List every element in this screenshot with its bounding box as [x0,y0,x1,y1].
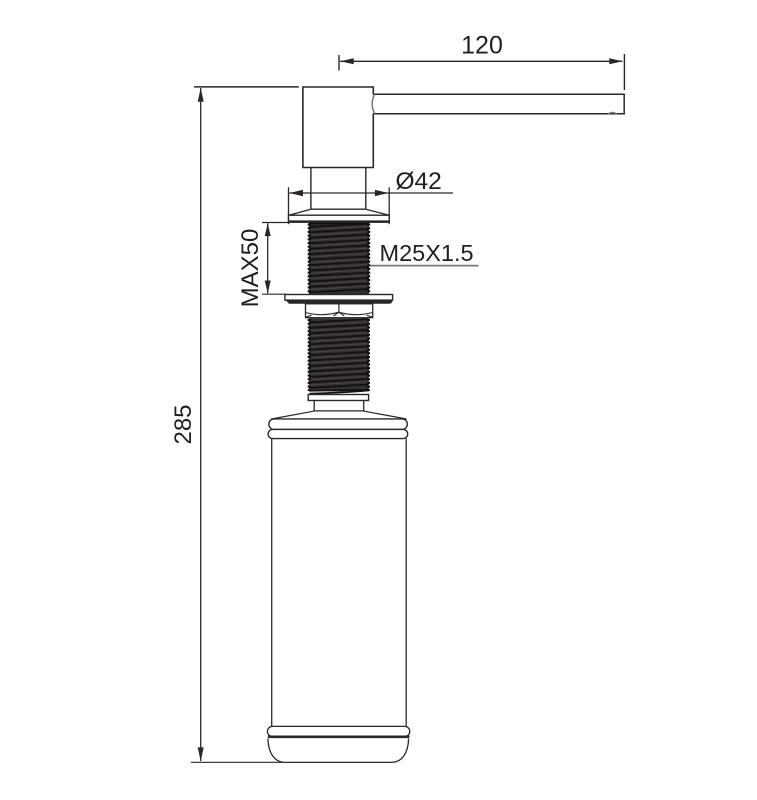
svg-text:M25X1.5: M25X1.5 [380,240,474,266]
svg-text:Ø42: Ø42 [396,168,442,195]
svg-text:MAX50: MAX50 [237,229,264,308]
svg-text:120: 120 [461,32,503,60]
svg-text:285: 285 [170,404,197,444]
